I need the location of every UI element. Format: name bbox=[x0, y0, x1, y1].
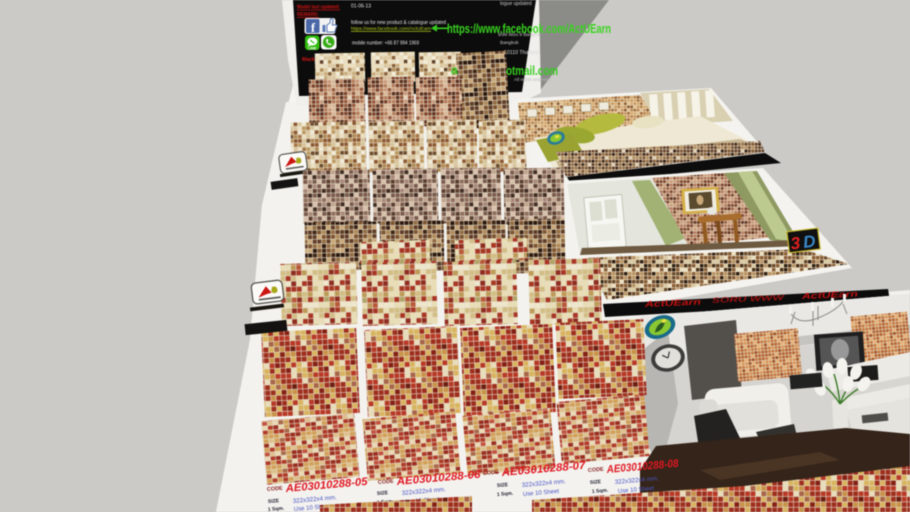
svg-text:1 Sqm.: 1 Sqm. bbox=[268, 506, 285, 512]
svg-text:Bangkok: Bangkok bbox=[500, 40, 519, 46]
svg-text:mobile number: +66 87 994 1969: mobile number: +66 87 994 1969 bbox=[352, 41, 419, 47]
svg-text:f: f bbox=[311, 20, 316, 35]
svg-text:SIZE: SIZE bbox=[590, 479, 602, 486]
svg-text:10110 Thailand: 10110 Thailand bbox=[504, 50, 539, 56]
svg-text:SIZE: SIZE bbox=[268, 498, 280, 505]
svg-text:01-06-13: 01-06-13 bbox=[351, 4, 371, 10]
svg-text:LINE: LINE bbox=[308, 46, 317, 50]
svg-text:a: a bbox=[451, 63, 458, 77]
svg-text:SIZE: SIZE bbox=[377, 490, 389, 497]
svg-text:follow us for new product & ca: follow us for new product & catalogue up… bbox=[351, 20, 446, 26]
svg-text:otmail.com: otmail.com bbox=[506, 64, 558, 78]
svg-text:logue updated: logue updated bbox=[500, 1, 532, 7]
svg-text:D: D bbox=[802, 232, 817, 252]
svg-text:SIZE: SIZE bbox=[497, 482, 509, 489]
svg-text:https://www.facebook.com/ActUE: https://www.facebook.com/ActUEarn bbox=[447, 21, 611, 36]
